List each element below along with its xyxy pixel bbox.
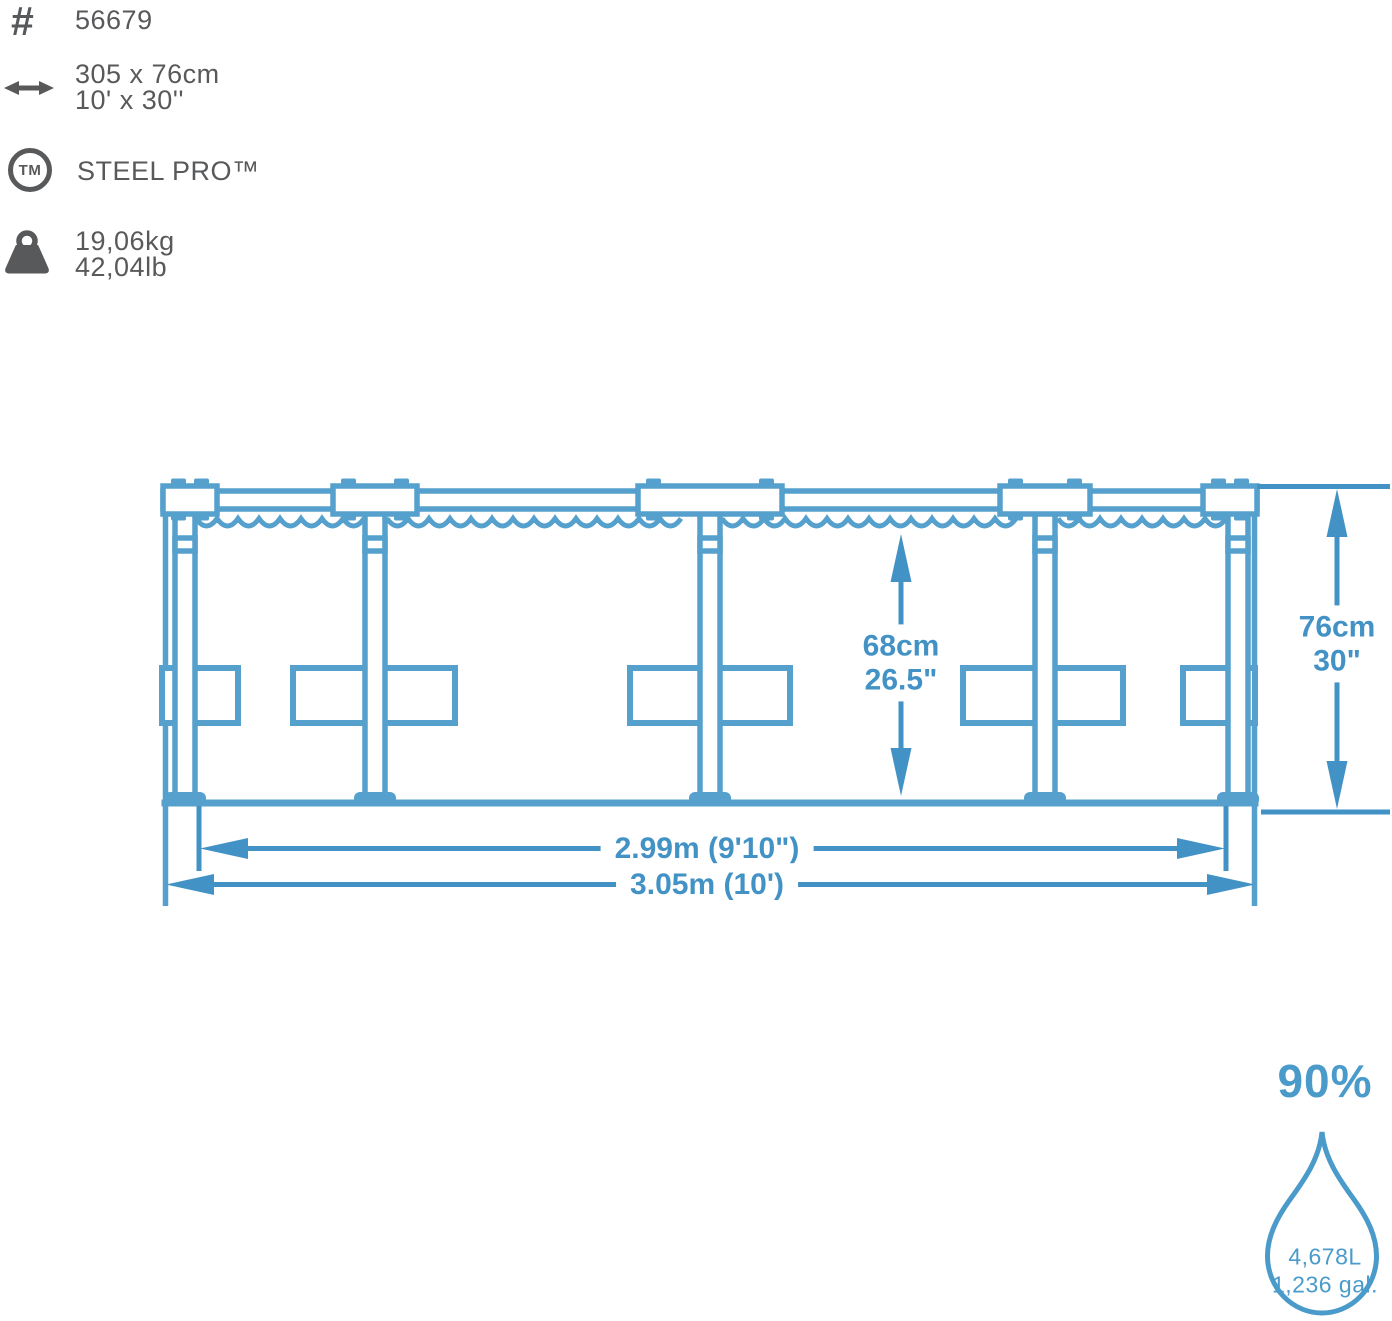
product-line: STEEL PRO™ [77,158,260,184]
leg-joint [1035,538,1055,551]
connector-nub [759,513,774,521]
inner-diameter-dim-arrowhead [1177,838,1225,859]
width-arrow-icon [4,81,54,95]
waterline [196,519,364,527]
connector-nub [394,479,409,488]
leg-joint [700,538,720,551]
wall-height-imperial: 30" [1299,644,1376,678]
pool-size-imperial: 10' x 30'' [75,87,220,113]
outer-diameter-dim-arrowhead [1207,874,1255,895]
rail-connector [638,486,782,514]
connector-nub [394,513,409,521]
connector-nub [1211,513,1226,521]
volume-label: 4,678L 1,236 gal. [1272,1243,1378,1298]
wall-height-dim-arrowhead [1327,761,1348,809]
water-depth-imperial: 26.5" [863,663,940,697]
connector-nub [646,479,661,488]
trademark-icon: TM [8,148,52,192]
connector-nub [194,479,209,488]
connector-nub [1211,479,1226,488]
connector-nub [171,513,186,521]
rail-connector [333,486,417,514]
rail-connector [1203,486,1257,514]
connector-nub [646,513,661,521]
leg-joint [1228,538,1248,551]
connector-nub [341,513,356,521]
fill-level-label: 90% [1277,1054,1372,1108]
volume-gallons: 1,236 gal. [1272,1271,1378,1299]
leg-joint [365,538,385,551]
pool-size: 305 x 76cm 10' x 30'' [75,61,220,113]
water-depth-dim-arrowhead [891,748,912,796]
connector-nub [1067,513,1082,521]
pool-weight-metric: 19,06kg [75,228,175,254]
connector-nub [759,479,774,488]
item-number-icon: # [11,0,34,45]
inner-diameter-dim-arrowhead [200,838,248,859]
wall-height-dim-arrowhead [1327,489,1348,537]
connector-nub [1008,479,1023,488]
waterline [1058,519,1226,527]
rail-connector [1000,486,1090,514]
connector-nub [194,513,209,521]
wall-height-label: 76cm 30" [1285,605,1390,682]
connector-nub [1234,479,1249,488]
item-number: 56679 [75,7,153,33]
connector-nub [1234,513,1249,521]
volume-liters: 4,678L [1272,1243,1378,1271]
wall-height-metric: 76cm [1299,610,1376,644]
spec-sheet: # 56679 305 x 76cm 10' x 30'' TM STEEL P… [0,0,1392,1321]
connector-nub [171,479,186,488]
pool-weight-imperial: 42,04lb [75,254,175,280]
leg-joint [175,538,195,551]
pool-diagram [0,0,1392,1321]
pool-size-metric: 305 x 76cm [75,61,220,87]
waterline [387,519,681,527]
weight-icon [6,233,48,273]
water-depth-label: 68cm 26.5" [849,624,954,701]
water-depth-metric: 68cm [863,629,940,663]
connector-nub [341,479,356,488]
water-depth-dim-arrowhead [891,534,912,582]
connector-nub [1008,513,1023,521]
pool-weight: 19,06kg 42,04lb [75,228,175,280]
connector-nub [1067,479,1082,488]
outer-diameter-label: 3.05m (10') [616,863,798,907]
rail-connector [163,486,217,514]
outer-diameter-dim-arrowhead [166,874,214,895]
